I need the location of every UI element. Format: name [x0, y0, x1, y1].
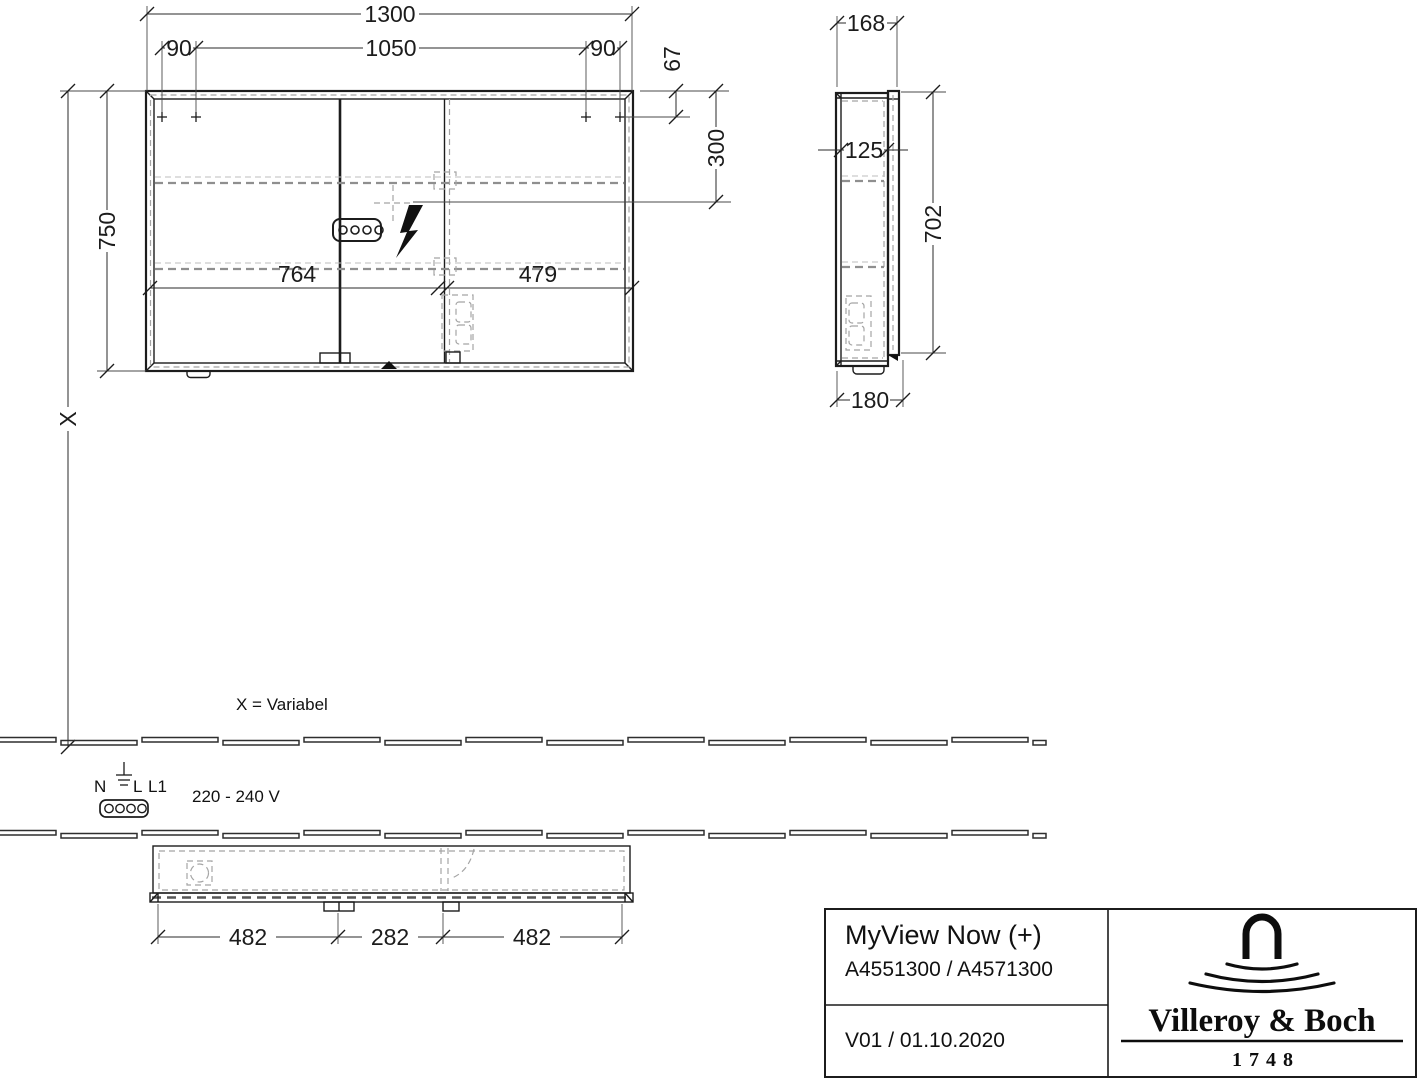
dim-margin-right: 90 — [590, 35, 616, 61]
dim-total-width: 1300 — [364, 1, 415, 27]
dim-door-left: 764 — [278, 261, 317, 287]
shelf-lines — [155, 172, 624, 275]
terminal-n-label: N — [94, 777, 106, 796]
dim-hinge-center: 282 — [371, 924, 409, 950]
brand-year: 1748 — [1232, 1049, 1300, 1071]
internal-socket-hidden — [442, 295, 473, 351]
side-view — [836, 91, 899, 374]
electrical-terminals: N L L1 220 - 240 V — [94, 762, 281, 817]
side-light-tab — [853, 366, 884, 374]
hidden-door-outline — [151, 95, 630, 367]
terminal-l-label: L — [133, 777, 142, 796]
wall-section-lower — [0, 831, 1046, 839]
plan-hinge-tabs — [324, 902, 459, 911]
drawing-canvas: 1300 90 1050 90 67 300 750 X 764 — [0, 0, 1418, 1080]
plan-dimensions: 482 282 482 — [151, 904, 629, 950]
voltage-label: 220 - 240 V — [192, 787, 281, 806]
lightning-bolt-icon — [396, 205, 423, 258]
product-name: MyView Now (+) — [845, 920, 1042, 950]
dim-hinge-left: 482 — [229, 924, 267, 950]
dim-socket-height: 300 — [703, 129, 729, 167]
title-block: MyView Now (+) A4551300 / A4571300 V01 /… — [825, 909, 1416, 1077]
plan-socket-hidden — [187, 861, 212, 885]
side-dimensions: 168 125 702 180 — [818, 10, 946, 413]
x-variable-note: X = Variabel — [236, 695, 328, 714]
dim-door-right: 479 — [519, 261, 557, 287]
wall-section-upper — [0, 738, 1046, 746]
dim-total-height: 750 — [94, 212, 120, 250]
technical-drawing-sheet: 1300 90 1050 90 67 300 750 X 764 — [0, 0, 1418, 1080]
dim-inner-depth: 125 — [845, 137, 883, 163]
terminal-socket-icon — [100, 800, 148, 817]
dim-top-offset: 67 — [659, 46, 685, 72]
front-view — [146, 91, 633, 378]
villeroy-boch-logo: Villeroy & Boch 1748 — [1121, 917, 1403, 1071]
front-dimensions: 1300 90 1050 90 67 300 750 X 764 — [55, 1, 731, 754]
plan-view — [150, 846, 633, 911]
dim-depth-bottom: 180 — [851, 387, 889, 413]
logo-fountain-icon — [1246, 917, 1278, 959]
dim-inner-width: 1050 — [365, 35, 416, 61]
earth-ground-icon — [116, 762, 132, 785]
dim-variable-height: X — [55, 411, 81, 426]
dim-door-height: 702 — [920, 205, 946, 243]
brand-name: Villeroy & Boch — [1148, 1003, 1375, 1039]
plan-door-swing — [441, 848, 474, 891]
plan-door-strip — [150, 893, 633, 902]
side-internal-socket-hidden — [846, 296, 871, 350]
mounting-point-icons — [157, 112, 625, 122]
plan-hidden-outline — [159, 851, 624, 890]
dim-depth-top: 168 — [847, 10, 885, 36]
terminal-l1-label: L1 — [148, 777, 167, 796]
version-date: V01 / 01.10.2020 — [845, 1029, 1005, 1052]
dim-hinge-right: 482 — [513, 924, 551, 950]
article-numbers: A4551300 / A4571300 — [845, 958, 1053, 981]
dim-margin-left: 90 — [166, 35, 192, 61]
